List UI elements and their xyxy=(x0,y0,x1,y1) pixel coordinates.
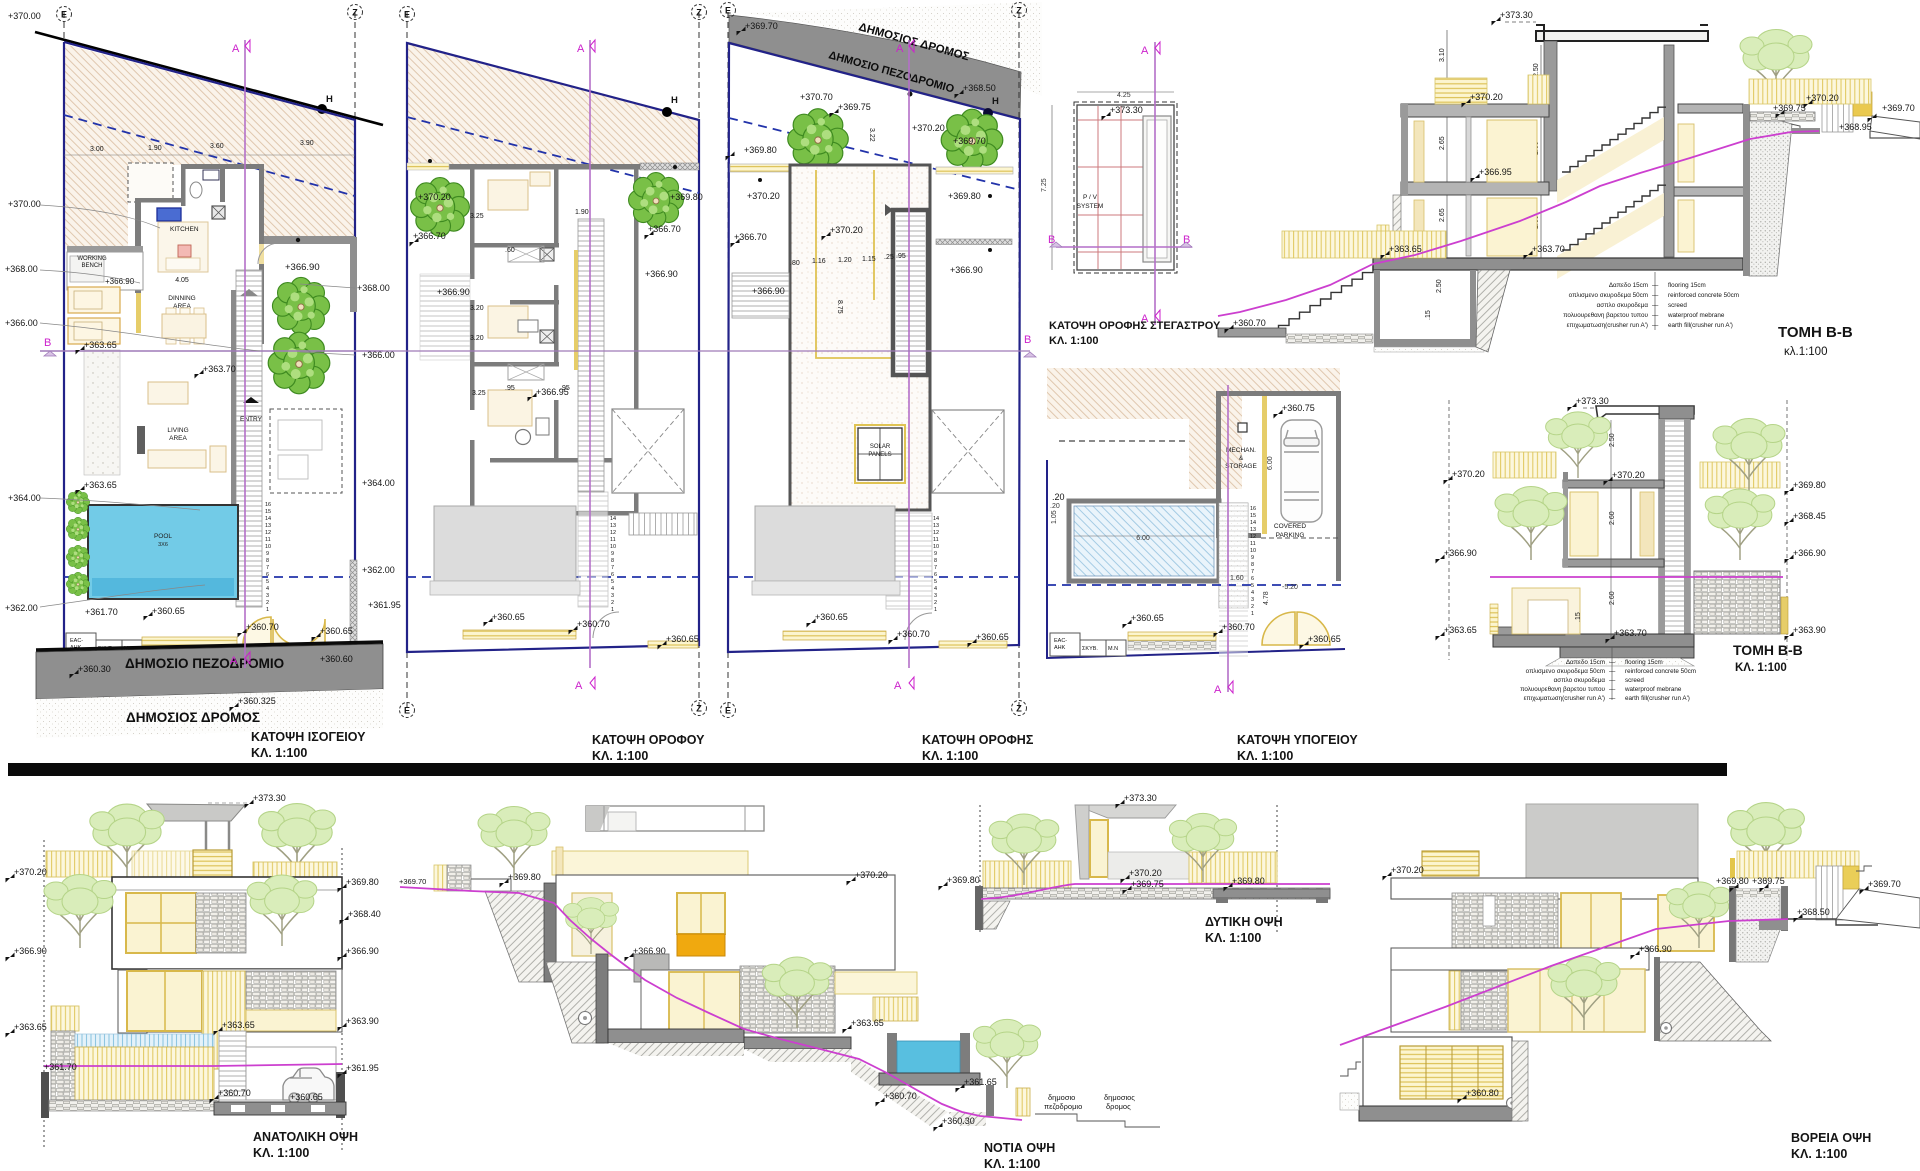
svg-text:+360.65: +360.65 xyxy=(815,612,848,622)
svg-text:+360.65: +360.65 xyxy=(492,612,525,622)
svg-text:+369.80: +369.80 xyxy=(744,145,777,155)
svg-text:3: 3 xyxy=(1251,597,1254,603)
svg-text:3X6: 3X6 xyxy=(158,542,168,548)
svg-text:ΚΛ. 1:100: ΚΛ. 1:100 xyxy=(1735,662,1787,674)
svg-text:ΚΑΤΟΨΗ ΟΡΟΦΗΣ ΣΤΕΓΑΣΤΡΟΥ: ΚΑΤΟΨΗ ΟΡΟΦΗΣ ΣΤΕΓΑΣΤΡΟΥ xyxy=(1049,320,1221,332)
svg-text:+369.75: +369.75 xyxy=(1131,879,1164,889)
svg-text:—: — xyxy=(1652,302,1659,309)
svg-text:+370.20: +370.20 xyxy=(830,225,863,235)
svg-text:7: 7 xyxy=(934,565,937,571)
svg-text:11: 11 xyxy=(933,537,939,543)
svg-text:4: 4 xyxy=(266,586,269,592)
svg-text:B: B xyxy=(1024,334,1031,346)
svg-text:+363.65: +363.65 xyxy=(222,1020,255,1030)
svg-text:COVERED: COVERED xyxy=(1274,523,1306,530)
svg-text:1.90: 1.90 xyxy=(148,145,162,152)
svg-text:+373.30: +373.30 xyxy=(1500,10,1533,20)
svg-text:H: H xyxy=(326,94,333,105)
svg-text:1.16: 1.16 xyxy=(812,258,826,265)
svg-text:ΚΛ. 1:100: ΚΛ. 1:100 xyxy=(1205,931,1261,945)
svg-text:P / V: P / V xyxy=(1083,194,1098,201)
svg-text:ENTRY: ENTRY xyxy=(240,416,263,423)
svg-text:—: — xyxy=(1609,695,1616,702)
svg-text:14: 14 xyxy=(1250,520,1256,526)
svg-text:5: 5 xyxy=(934,579,937,585)
svg-text:10: 10 xyxy=(933,544,939,550)
svg-text:+370.00: +370.00 xyxy=(8,11,41,21)
svg-text:+369.80: +369.80 xyxy=(947,875,980,885)
svg-text:+360.70: +360.70 xyxy=(577,619,610,629)
svg-text:.15: .15 xyxy=(1425,310,1432,320)
svg-text:+360.65: +360.65 xyxy=(320,626,353,636)
svg-text:E: E xyxy=(725,6,731,16)
svg-text:A: A xyxy=(577,43,585,55)
svg-text:2.60: 2.60 xyxy=(1609,511,1616,525)
svg-text:+363.65: +363.65 xyxy=(84,340,117,350)
svg-text:+369.70: +369.70 xyxy=(399,877,426,886)
svg-text:ασπλο σκυροδεμα: ασπλο σκυροδεμα xyxy=(1554,677,1606,684)
svg-text:1.20: 1.20 xyxy=(838,257,852,264)
svg-text:ΤΟΜΗ Β-Β: ΤΟΜΗ Β-Β xyxy=(1778,324,1853,341)
svg-text:οπλισμενο σκυροδεμα 50cm: οπλισμενο σκυροδεμα 50cm xyxy=(1569,292,1648,299)
svg-text:1.05: 1.05 xyxy=(1051,510,1058,524)
svg-text:—: — xyxy=(1652,322,1659,329)
svg-text:+369.80: +369.80 xyxy=(1232,876,1265,886)
svg-text:—: — xyxy=(1609,677,1616,684)
svg-text:2.60: 2.60 xyxy=(1609,591,1616,605)
svg-text:+360.30: +360.30 xyxy=(942,1116,975,1126)
svg-text:ΔΗΜΟΣΙΟΣ ΔΡΟΜΟΣ: ΔΗΜΟΣΙΟΣ ΔΡΟΜΟΣ xyxy=(126,710,260,725)
svg-text:+370.20: +370.20 xyxy=(912,123,945,133)
svg-text:10: 10 xyxy=(610,544,616,550)
svg-text:+364.00: +364.00 xyxy=(362,478,395,488)
svg-text:6.00: 6.00 xyxy=(1267,456,1274,470)
svg-text:.25: .25 xyxy=(884,254,894,261)
svg-text:2: 2 xyxy=(1251,604,1254,610)
svg-text:6: 6 xyxy=(611,572,614,578)
svg-text:+363.70: +363.70 xyxy=(203,364,236,374)
svg-text:+370.20: +370.20 xyxy=(1612,470,1645,480)
svg-text:12: 12 xyxy=(933,530,939,536)
svg-text:4.05: 4.05 xyxy=(175,277,189,284)
svg-text:+368.00: +368.00 xyxy=(357,283,390,293)
svg-text:3.90: 3.90 xyxy=(300,140,314,147)
svg-text:9: 9 xyxy=(934,551,937,557)
svg-text:reinforced concrete 50cm: reinforced concrete 50cm xyxy=(1625,668,1696,675)
svg-text:+369.70: +369.70 xyxy=(1868,879,1901,889)
svg-text:12: 12 xyxy=(1250,534,1256,540)
svg-text:+363.65: +363.65 xyxy=(851,1018,884,1028)
svg-text:4.78: 4.78 xyxy=(1263,591,1270,605)
svg-text:5: 5 xyxy=(611,579,614,585)
svg-text:+370.20: +370.20 xyxy=(855,870,888,880)
svg-text:+373.30: +373.30 xyxy=(1124,793,1157,803)
svg-text:H: H xyxy=(992,96,999,107)
svg-text:ΚΛ. 1:100: ΚΛ. 1:100 xyxy=(251,746,307,760)
svg-text:1: 1 xyxy=(266,607,269,613)
svg-text:ΔΗΜΟΣΙΟ ΠΕΖΟΔΡΟΜΙΟ: ΔΗΜΟΣΙΟ ΠΕΖΟΔΡΟΜΙΟ xyxy=(125,656,284,671)
svg-text:waterproof mebrane: waterproof mebrane xyxy=(1624,686,1682,693)
svg-text:14: 14 xyxy=(265,516,271,522)
svg-text:13: 13 xyxy=(610,523,616,529)
svg-text:AREA: AREA xyxy=(169,435,187,442)
svg-text:SYSTEM: SYSTEM xyxy=(1077,203,1104,210)
svg-text:ΚΛ. 1:100: ΚΛ. 1:100 xyxy=(592,749,648,763)
svg-text:Z: Z xyxy=(696,8,702,18)
svg-text:+370.20: +370.20 xyxy=(1391,865,1424,875)
svg-text:+369.70: +369.70 xyxy=(745,21,778,31)
svg-text:+369.70: +369.70 xyxy=(953,136,986,146)
svg-text:+360.65: +360.65 xyxy=(1131,613,1164,623)
svg-text:+361.95: +361.95 xyxy=(368,600,401,610)
svg-text:2: 2 xyxy=(934,600,937,606)
svg-text:3.20: 3.20 xyxy=(470,305,484,312)
svg-text:3.22: 3.22 xyxy=(868,128,875,142)
svg-text:ΚΛ. 1:100: ΚΛ. 1:100 xyxy=(1049,335,1099,347)
svg-text:+370.20: +370.20 xyxy=(1129,868,1162,878)
svg-text:+361.70: +361.70 xyxy=(44,1062,77,1072)
svg-text:.60: .60 xyxy=(505,247,515,254)
svg-text:3.25: 3.25 xyxy=(472,390,486,397)
svg-text:+366.00: +366.00 xyxy=(5,318,38,328)
svg-text:flooring 15cm: flooring 15cm xyxy=(1625,659,1663,666)
svg-text:+360.75: +360.75 xyxy=(1282,403,1315,413)
svg-text:2: 2 xyxy=(611,600,614,606)
svg-text:δημοσιος: δημοσιος xyxy=(1104,1093,1135,1102)
svg-text:1.90: 1.90 xyxy=(575,209,589,216)
svg-text:+370.20: +370.20 xyxy=(418,192,451,202)
svg-text:+366.90: +366.90 xyxy=(1639,944,1672,954)
svg-text:15: 15 xyxy=(265,509,271,515)
svg-text:3.60: 3.60 xyxy=(210,143,224,150)
svg-text:13: 13 xyxy=(933,523,939,529)
svg-text:14: 14 xyxy=(933,516,939,522)
svg-text:ασπλο σκυροδεμα: ασπλο σκυροδεμα xyxy=(1597,302,1649,309)
svg-text:+370.20: +370.20 xyxy=(1452,469,1485,479)
svg-text:+366.90: +366.90 xyxy=(1793,548,1826,558)
svg-text:+373.30: +373.30 xyxy=(1576,396,1609,406)
svg-text:+369.80: +369.80 xyxy=(948,191,981,201)
svg-text:+369.80: +369.80 xyxy=(508,872,541,882)
svg-text:Z: Z xyxy=(1016,6,1022,16)
svg-text:E: E xyxy=(404,10,410,20)
svg-text:WORKING: WORKING xyxy=(77,256,107,262)
svg-text:δημοσιο: δημοσιο xyxy=(1048,1093,1075,1102)
svg-text:3: 3 xyxy=(934,593,937,599)
svg-text:flooring 15cm: flooring 15cm xyxy=(1668,282,1706,289)
svg-text:-5.20: -5.20 xyxy=(1282,584,1298,591)
svg-text:16: 16 xyxy=(1250,506,1256,512)
svg-text:13: 13 xyxy=(265,523,271,529)
svg-text:.95: .95 xyxy=(505,385,515,392)
svg-text:+366.90: +366.90 xyxy=(752,286,785,296)
svg-text:waterproof mebrane: waterproof mebrane xyxy=(1667,312,1725,319)
svg-text:+368.00: +368.00 xyxy=(5,264,38,274)
svg-text:8: 8 xyxy=(934,558,937,564)
svg-text:6: 6 xyxy=(266,572,269,578)
svg-text:+369.75: +369.75 xyxy=(1773,103,1806,113)
svg-text:+369.70: +369.70 xyxy=(1882,103,1915,113)
svg-text:M.N: M.N xyxy=(1108,646,1118,652)
svg-text:A: A xyxy=(896,43,904,55)
svg-text:3.25: 3.25 xyxy=(470,213,484,220)
svg-text:9: 9 xyxy=(266,551,269,557)
svg-text:+373.30: +373.30 xyxy=(253,793,286,803)
svg-text:E: E xyxy=(725,706,731,716)
svg-text:+360.65: +360.65 xyxy=(152,606,185,616)
svg-text:+364.00: +364.00 xyxy=(8,493,41,503)
svg-text:AHK: AHK xyxy=(1054,645,1066,651)
svg-text:+366.90: +366.90 xyxy=(1444,548,1477,558)
svg-text:3.20: 3.20 xyxy=(470,335,484,342)
svg-text:4: 4 xyxy=(1251,590,1254,596)
svg-text:Z: Z xyxy=(696,704,702,714)
svg-text:+360.80: +360.80 xyxy=(1466,1088,1499,1098)
svg-text:8: 8 xyxy=(611,558,614,564)
svg-text:screed: screed xyxy=(1625,677,1644,684)
svg-text:+370.70: +370.70 xyxy=(800,92,833,102)
svg-text:+360.70: +360.70 xyxy=(218,1088,251,1098)
svg-text:+363.65: +363.65 xyxy=(1389,244,1422,254)
svg-text:+360.65: +360.65 xyxy=(1308,634,1341,644)
svg-text:δρομος: δρομος xyxy=(1106,1102,1131,1111)
svg-text:+369.80: +369.80 xyxy=(1793,480,1826,490)
svg-text:+369.80: +369.80 xyxy=(346,877,379,887)
svg-text:+366.90: +366.90 xyxy=(285,262,320,273)
svg-text:10: 10 xyxy=(265,544,271,550)
svg-text:.80: .80 xyxy=(790,260,800,267)
svg-text:4.25: 4.25 xyxy=(1117,92,1131,99)
svg-text:+363.70: +363.70 xyxy=(1532,244,1565,254)
svg-text:ΚΛ. 1:100: ΚΛ. 1:100 xyxy=(1791,1147,1847,1161)
svg-text:+368.40: +368.40 xyxy=(348,909,381,919)
svg-text:2: 2 xyxy=(266,600,269,606)
svg-text:+366.90: +366.90 xyxy=(437,287,470,297)
svg-text:1.15: 1.15 xyxy=(862,256,876,263)
svg-text:ΚΑΤΟΨΗ ΥΠΟΓΕΙΟΥ: ΚΑΤΟΨΗ ΥΠΟΓΕΙΟΥ xyxy=(1237,733,1358,747)
svg-text:reinforced concrete 50cm: reinforced concrete 50cm xyxy=(1668,292,1739,299)
svg-text:A: A xyxy=(894,680,902,692)
svg-text:EAC-: EAC- xyxy=(70,638,83,644)
svg-text:EAC-: EAC- xyxy=(1054,638,1067,644)
svg-text:+360.70: +360.70 xyxy=(246,622,279,632)
svg-text:1: 1 xyxy=(1251,611,1254,617)
svg-text:.15: .15 xyxy=(1575,612,1582,622)
svg-text:+360.30: +360.30 xyxy=(78,664,111,674)
svg-text:+368.95: +368.95 xyxy=(1839,122,1872,132)
svg-text:ΚΛ. 1:100: ΚΛ. 1:100 xyxy=(253,1146,309,1160)
svg-text:KITCHEN: KITCHEN xyxy=(170,226,199,233)
svg-text:+369.80: +369.80 xyxy=(670,192,703,202)
svg-text:LIVING: LIVING xyxy=(167,427,188,434)
svg-text:+366.90: +366.90 xyxy=(645,269,678,279)
svg-text:+361.70: +361.70 xyxy=(85,607,118,617)
svg-text:—: — xyxy=(1652,292,1659,299)
svg-text:ΚΑΤΟΨΗ ΟΡΟΦΗΣ: ΚΑΤΟΨΗ ΟΡΟΦΗΣ xyxy=(922,733,1034,747)
svg-text:earth fill(crusher run A'): earth fill(crusher run A') xyxy=(1668,322,1733,329)
svg-text:5: 5 xyxy=(1251,583,1254,589)
svg-text:—: — xyxy=(1609,659,1616,666)
svg-text:6: 6 xyxy=(934,572,937,578)
svg-text:11: 11 xyxy=(1250,541,1256,547)
svg-text:1.60: 1.60 xyxy=(1230,575,1244,582)
svg-text:επιχωματωση(crusher run A'): επιχωματωση(crusher run A') xyxy=(1567,322,1648,329)
svg-text:οπλισμενο σκυροδεμα 50cm: οπλισμενο σκυροδεμα 50cm xyxy=(1526,668,1605,675)
svg-text:ΚΛ. 1:100: ΚΛ. 1:100 xyxy=(984,1157,1040,1171)
svg-text:A: A xyxy=(1141,45,1149,57)
svg-text:+360.60: +360.60 xyxy=(320,654,353,664)
svg-text:PANELS: PANELS xyxy=(868,452,891,458)
svg-text:πεζοδρομιο: πεζοδρομιο xyxy=(1044,1102,1082,1111)
svg-text:4: 4 xyxy=(611,586,614,592)
svg-text:+366.90: +366.90 xyxy=(14,946,47,956)
svg-text:E: E xyxy=(61,10,67,20)
svg-text:+366.90: +366.90 xyxy=(105,277,135,286)
svg-text:16: 16 xyxy=(265,502,271,508)
svg-text:A: A xyxy=(230,655,238,667)
svg-text:ΚΛ. 1:100: ΚΛ. 1:100 xyxy=(1237,749,1293,763)
svg-text:9: 9 xyxy=(1251,555,1254,561)
svg-text:+363.65: +363.65 xyxy=(1444,625,1477,635)
svg-text:.20: .20 xyxy=(1050,503,1060,510)
svg-text:ΚΑΤΟΨΗ ΟΡΟΦΟΥ: ΚΑΤΟΨΗ ΟΡΟΦΟΥ xyxy=(592,733,705,747)
svg-text:H: H xyxy=(671,95,678,106)
svg-text:2.65: 2.65 xyxy=(1439,208,1446,222)
svg-text:SOLAR: SOLAR xyxy=(870,444,891,450)
svg-text:+370.20: +370.20 xyxy=(1470,92,1503,102)
svg-text:7.25: 7.25 xyxy=(1041,178,1048,192)
svg-text:+366.95: +366.95 xyxy=(1479,167,1512,177)
svg-text:7: 7 xyxy=(611,565,614,571)
svg-text:A: A xyxy=(575,680,583,692)
svg-text:12: 12 xyxy=(265,530,271,536)
svg-text:STORAGE: STORAGE xyxy=(1225,463,1257,470)
svg-text:+370.20: +370.20 xyxy=(14,867,47,877)
svg-text:+369.75: +369.75 xyxy=(838,102,871,112)
svg-text:2.50: 2.50 xyxy=(1609,433,1616,447)
svg-text:+360.70: +360.70 xyxy=(884,1091,917,1101)
svg-text:ΑΝΑΤΟΛΙΚΗ ΟΨΗ: ΑΝΑΤΟΛΙΚΗ ΟΨΗ xyxy=(253,1130,358,1144)
svg-text:+366.90: +366.90 xyxy=(346,946,379,956)
svg-text:earth fill(crusher run A'): earth fill(crusher run A') xyxy=(1625,695,1690,702)
svg-text:+360.70: +360.70 xyxy=(897,629,930,639)
svg-text:+363.65: +363.65 xyxy=(84,480,117,490)
svg-text:+362.00: +362.00 xyxy=(5,603,38,613)
svg-text:1: 1 xyxy=(934,607,937,613)
svg-text:&: & xyxy=(1239,455,1244,462)
svg-text:—: — xyxy=(1609,668,1616,675)
svg-text:+360.65: +360.65 xyxy=(666,634,699,644)
svg-text:8.75: 8.75 xyxy=(836,300,843,314)
svg-text:+363.90: +363.90 xyxy=(346,1016,379,1026)
svg-text:3: 3 xyxy=(611,593,614,599)
svg-text:3: 3 xyxy=(266,593,269,599)
svg-text:.95: .95 xyxy=(560,385,570,392)
svg-text:πολυουρεθανη βαρετου τυπου: πολυουρεθανη βαρετου τυπου xyxy=(1563,312,1648,319)
svg-text:επιχωματωση(crusher run A'): επιχωματωση(crusher run A') xyxy=(1524,695,1605,702)
svg-text:2.50: 2.50 xyxy=(1436,279,1443,293)
svg-text:2.65: 2.65 xyxy=(1439,136,1446,150)
svg-text:+363.70: +363.70 xyxy=(1614,628,1647,638)
svg-text:B: B xyxy=(44,337,51,349)
svg-text:Z: Z xyxy=(352,8,358,18)
svg-text:+362.00: +362.00 xyxy=(362,565,395,575)
svg-text:9: 9 xyxy=(611,551,614,557)
svg-text:+363.90: +363.90 xyxy=(1793,625,1826,635)
svg-text:+360.70: +360.70 xyxy=(1233,318,1266,328)
svg-text:ΝΟΤΙΑ ΟΨΗ: ΝΟΤΙΑ ΟΨΗ xyxy=(984,1141,1055,1155)
svg-text:Δαπεδο 15cm: Δαπεδο 15cm xyxy=(1609,282,1648,289)
svg-text:7: 7 xyxy=(1251,569,1254,575)
svg-text:A: A xyxy=(1214,684,1222,696)
svg-text:A: A xyxy=(232,43,240,55)
svg-text:8: 8 xyxy=(266,558,269,564)
svg-text:ΣΚΥΒ.: ΣΚΥΒ. xyxy=(1082,646,1098,652)
svg-text:—: — xyxy=(1609,686,1616,693)
svg-text:Z: Z xyxy=(1016,704,1022,714)
svg-text:+361.65: +361.65 xyxy=(964,1077,997,1087)
svg-text:—: — xyxy=(1652,312,1659,319)
svg-text:+373.30: +373.30 xyxy=(1110,105,1143,115)
svg-text:+360.65: +360.65 xyxy=(976,632,1009,642)
svg-text:POOL: POOL xyxy=(154,533,172,540)
svg-text:11: 11 xyxy=(265,537,271,543)
svg-text:+370.20: +370.20 xyxy=(747,191,780,201)
svg-text:+361.95: +361.95 xyxy=(346,1063,379,1073)
svg-text:.20: .20 xyxy=(1052,492,1065,502)
svg-text:ΤΟΜΗ Β-Β: ΤΟΜΗ Β-Β xyxy=(1733,642,1803,658)
svg-text:Δαπεδο 15cm: Δαπεδο 15cm xyxy=(1566,659,1605,666)
svg-text:MECHAN.: MECHAN. xyxy=(1226,447,1256,454)
svg-text:—: — xyxy=(1652,282,1659,289)
svg-text:13: 13 xyxy=(1250,527,1256,533)
svg-text:ΒΟΡΕΙΑ ΟΨΗ: ΒΟΡΕΙΑ ΟΨΗ xyxy=(1791,1131,1871,1145)
svg-text:.95: .95 xyxy=(896,253,906,260)
svg-text:6: 6 xyxy=(1251,576,1254,582)
svg-text:E: E xyxy=(404,706,410,716)
svg-text:ΚΛ. 1:100: ΚΛ. 1:100 xyxy=(922,749,978,763)
svg-text:8: 8 xyxy=(1251,562,1254,568)
svg-text:BENCH: BENCH xyxy=(81,263,102,269)
svg-text:κλ.1:100: κλ.1:100 xyxy=(1784,346,1827,358)
svg-text:+368.45: +368.45 xyxy=(1793,511,1826,521)
svg-text:12: 12 xyxy=(610,530,616,536)
svg-text:+360.65: +360.65 xyxy=(290,1092,323,1102)
svg-text:ΔΥΤΙΚΗ ΟΨΗ: ΔΥΤΙΚΗ ΟΨΗ xyxy=(1205,915,1283,929)
svg-text:+370.00: +370.00 xyxy=(8,199,41,209)
svg-text:4: 4 xyxy=(934,586,937,592)
svg-text:ΚΑΤΟΨΗ ΙΣΟΓΕΙΟΥ: ΚΑΤΟΨΗ ΙΣΟΓΕΙΟΥ xyxy=(251,730,366,744)
svg-text:10: 10 xyxy=(1250,548,1256,554)
svg-text:+366.90: +366.90 xyxy=(950,265,983,275)
svg-text:+368.50: +368.50 xyxy=(963,83,996,93)
svg-text:3.10: 3.10 xyxy=(1439,48,1446,62)
svg-text:πολυουρεθανη βαρετου τυπου: πολυουρεθανη βαρετου τυπου xyxy=(1520,686,1605,693)
svg-text:+369.80: +369.80 xyxy=(1716,876,1749,886)
svg-text:15: 15 xyxy=(1250,513,1256,519)
svg-text:DINNING: DINNING xyxy=(168,295,195,302)
svg-text:screed: screed xyxy=(1668,302,1687,309)
svg-text:3.00: 3.00 xyxy=(90,146,104,153)
svg-text:11: 11 xyxy=(610,537,616,543)
svg-text:+363.65: +363.65 xyxy=(14,1022,47,1032)
svg-text:14: 14 xyxy=(610,516,616,522)
svg-text:+360.70: +360.70 xyxy=(1222,622,1255,632)
svg-text:5: 5 xyxy=(266,579,269,585)
svg-text:+360.325: +360.325 xyxy=(238,696,276,706)
svg-text:7: 7 xyxy=(266,565,269,571)
